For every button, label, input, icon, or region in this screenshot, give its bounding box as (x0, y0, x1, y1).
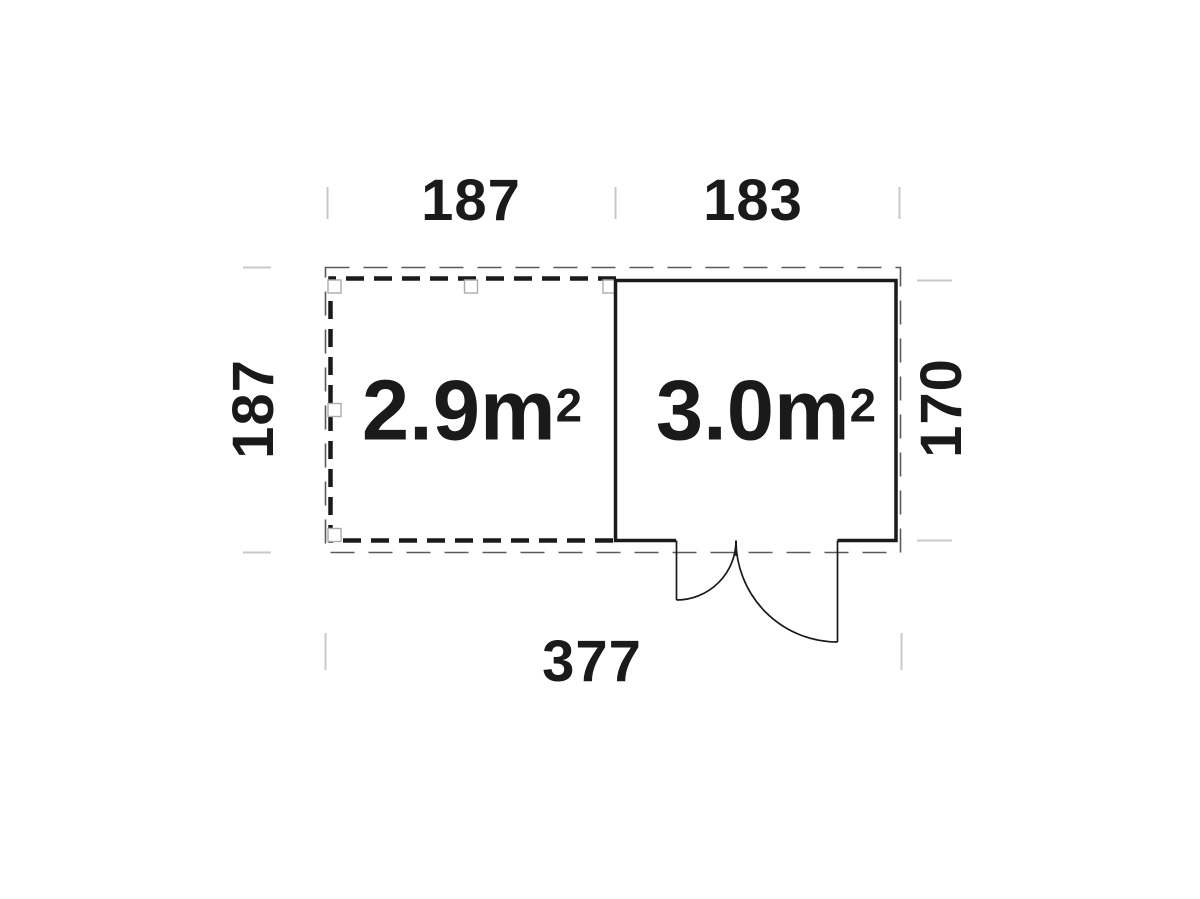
door-swing-arc-right (736, 541, 838, 643)
terrace-area-value: 2.9m (362, 364, 556, 459)
floor-plan: 187 183 187 170 377 2.9m2 3.0m2 (0, 0, 1200, 899)
cabin-area-label: 3.0m2 (656, 369, 876, 454)
dimension-label-right-cabin: 170 (913, 358, 971, 458)
post-icon-top-left (328, 280, 341, 293)
door-swing-arc-left (677, 541, 737, 601)
post-icon-left-center (328, 404, 341, 417)
dimension-label-bottom-overall: 377 (542, 633, 642, 691)
dimension-label-top-cabin: 183 (703, 172, 803, 230)
cabin-area-value: 3.0m (656, 364, 850, 459)
floor-plan-drawing (0, 0, 1200, 899)
terrace-area-label: 2.9m2 (362, 369, 582, 454)
post-icon-top-center (465, 280, 478, 293)
dimension-label-left-overall: 187 (225, 359, 283, 459)
post-icon-bottom-left (328, 529, 341, 542)
terrace-area-exponent: 2 (556, 379, 582, 432)
dimension-label-top-terrace: 187 (421, 172, 521, 230)
cabin-area-exponent: 2 (850, 379, 876, 432)
door-swing (677, 541, 838, 643)
